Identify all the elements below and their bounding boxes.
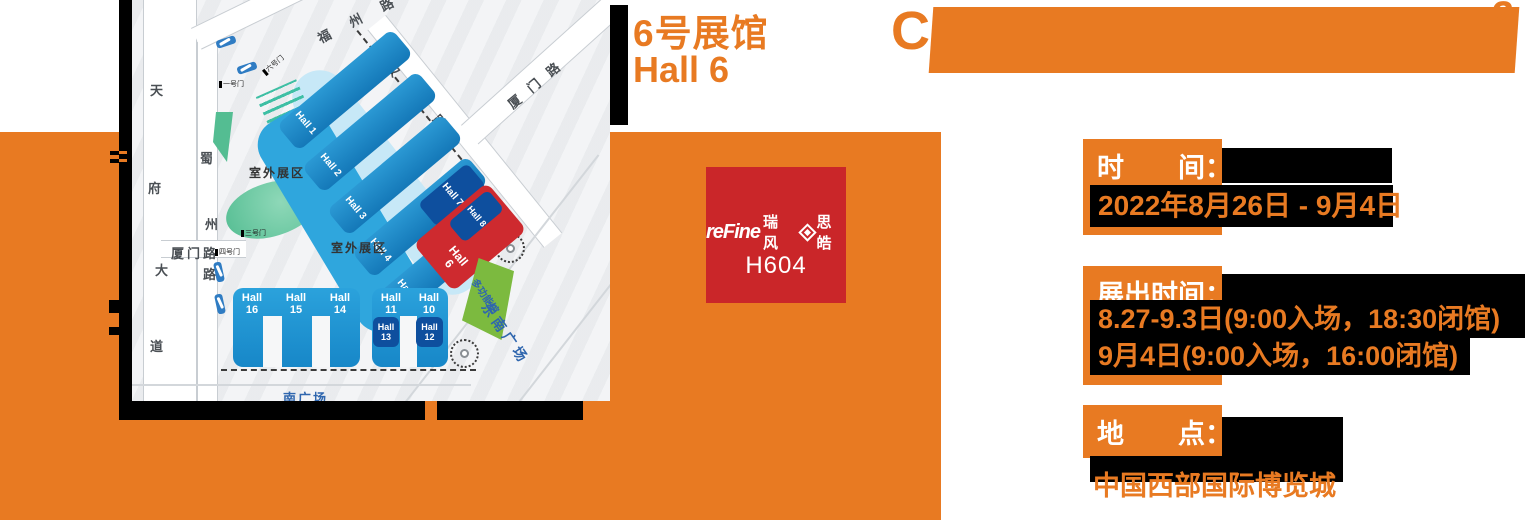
map-edge-bottom-1 [119,401,425,420]
road-label-shuzhou-1: 蜀 [200,148,213,167]
road-label-tianfu-2: 府 [148,178,161,197]
road-line-bottom [131,384,471,386]
complex-west-slot-2 [312,316,330,367]
title-divider-bar [610,5,628,125]
brand-logo-row: reFine 瑞风 思皓 [706,211,846,253]
hall-16-label: Hall 16 [235,292,269,316]
venue-map: 天 府 大 道 蜀 州 路 厦门路 福州路 汉州路 厦门路 Hall 1 Hal… [131,0,610,401]
map-edge-bottom-2 [437,401,583,420]
time-label-trailing-bar [1222,148,1392,183]
hall-14-label: Hall 14 [323,292,357,316]
road-label-shuzhou-2: 州 [205,214,218,233]
venue-label-chip: 地 点： [1083,405,1222,458]
ruifeng-logo: 瑞风 [763,211,793,253]
hall-13: Hall 13 [373,317,399,347]
hall-13-label: Hall 13 [373,322,399,342]
gate-1: 一号门 [219,79,244,89]
gate-3-label: 三号门 [245,230,266,237]
hall-15-label: Hall 15 [279,292,313,316]
hall-12-label: Hall 12 [417,322,443,342]
hall-complex-west: Hall 16 Hall 15 Hall 14 [233,288,360,367]
gate-3: 三号门 [241,228,266,238]
map-edge-slit-2 [119,159,127,162]
road-label-tianfu-4: 道 [150,336,163,355]
hall-3-label: Hall 3 [342,194,369,223]
time-value: 2022年8月26日 - 9月4日 [1090,185,1393,227]
page-title-en: Hall 6 [633,49,729,91]
booth-badge: reFine 瑞风 思皓 H604 [706,167,846,303]
banner-fragment-c: C [891,2,930,60]
banner-blob [929,7,1520,73]
road-label-xiamen-left: 厦门路 [171,243,219,262]
venue-label: 地 点： [1083,405,1222,451]
outdoor-area-2: 室外展区 [331,239,387,256]
transit-icon-2 [236,61,257,75]
hall-11-label: Hall 11 [374,292,408,316]
time-label: 时 间： [1083,139,1222,185]
complex-west-slot-1 [263,316,282,367]
map-edge-tick-2 [110,159,119,163]
venue-label-trailing-bar [1222,417,1343,457]
gate-6-label: 六号门 [265,55,286,74]
map-edge-tick-4 [109,327,119,335]
sehol-diamond-icon [798,223,816,241]
exhibition-flyer: 天 府 大 道 蜀 州 路 厦门路 福州路 汉州路 厦门路 Hall 1 Hal… [0,0,1525,520]
road-label-tianfu-1: 天 [150,80,163,99]
hall-6-label: Hall 6 [435,241,473,279]
map-edge-slit-1 [119,151,127,154]
road-label-tianfu-3: 大 [155,260,168,279]
south-plaza-label: 南广场 [283,388,328,401]
roundabout-lower-center [460,349,469,358]
hall-10-label: Hall 10 [412,292,446,316]
hours-value-line2: 9月4日(9:00入场，16:00闭馆) [1090,338,1470,375]
map-edge-tick-3 [109,300,119,313]
dotted-route-bottom [221,369,476,371]
sehol-logo: 思皓 [816,211,846,253]
gate-4-label: 四号门 [219,249,240,256]
hall-complex-east: Hall 11 Hall 10 Hall 13 Hall 12 [372,288,448,367]
hall-2-label: Hall 2 [317,151,344,180]
booth-number: H604 [706,252,846,280]
venue-value: 中国西部国际博览城 [1085,464,1336,503]
banner-fragment-2: 2 [1490,0,1512,39]
hall-12: Hall 12 [416,317,443,347]
outdoor-area-1: 室外展区 [249,164,305,181]
hall-1-label: Hall 1 [292,109,319,138]
hours-value-line1: 8.27-9.3日(9:00入场，18:30闭馆) [1090,300,1525,338]
gate-1-label: 一号门 [223,81,244,88]
map-edge-tick-1 [110,151,119,155]
refine-logo: reFine [706,221,760,244]
complex-east-slot [400,316,417,367]
gate-4: 四号门 [215,247,240,257]
map-edge-left [119,0,132,420]
gate-6: 六号门 [261,53,287,77]
hall-8-label: Hall 8 [463,202,489,231]
